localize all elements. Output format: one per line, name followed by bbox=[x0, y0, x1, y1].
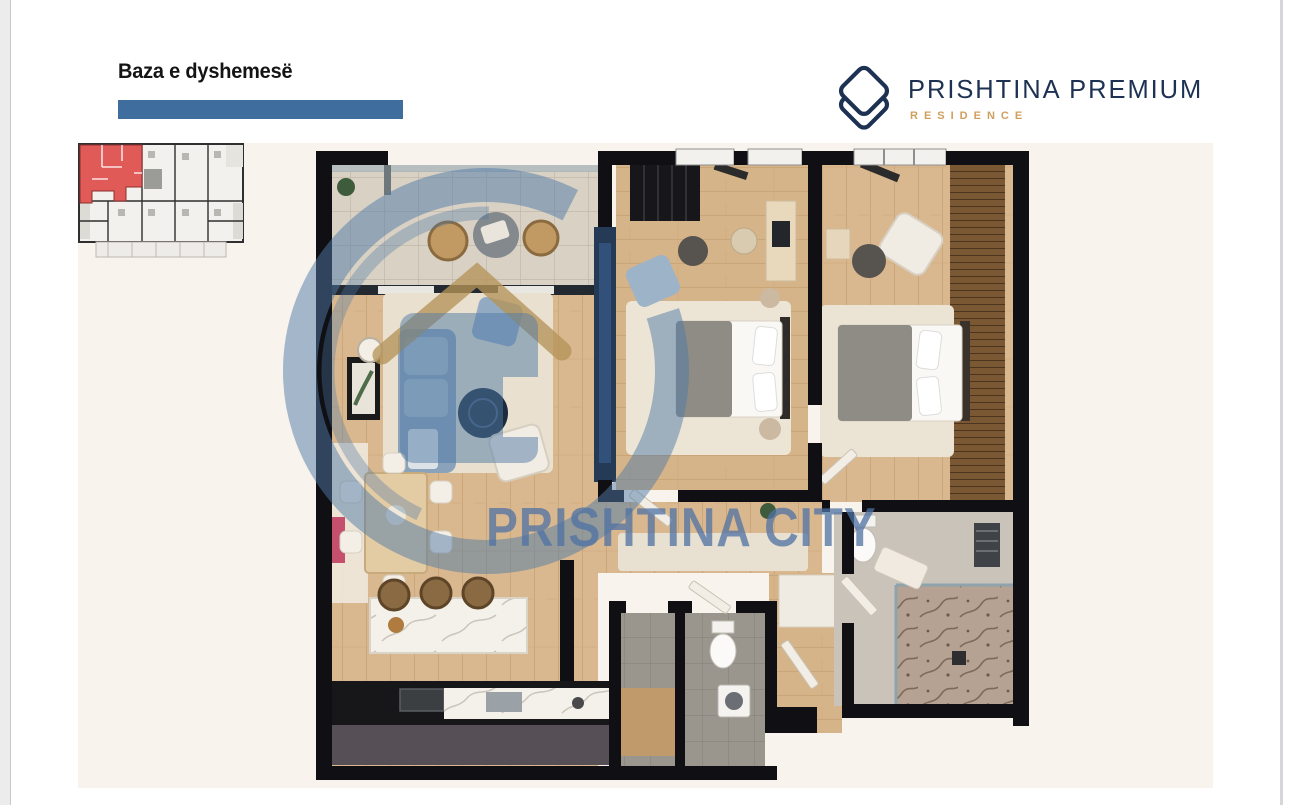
brand-subtitle: RESIDENCE bbox=[910, 110, 1028, 122]
key-plan-inset bbox=[78, 143, 245, 261]
washing-machine bbox=[718, 685, 750, 717]
left-edge-strip bbox=[0, 0, 11, 805]
right-edge-line bbox=[1280, 0, 1283, 805]
elevator-core bbox=[144, 169, 162, 189]
balcony-plant bbox=[337, 178, 355, 196]
shower-floor bbox=[896, 585, 1013, 706]
page-title: Baza e dyshemesë bbox=[118, 60, 292, 84]
wc-door-leaf bbox=[688, 580, 731, 614]
title-underline-bar bbox=[118, 100, 403, 119]
wardrobe bbox=[630, 165, 700, 221]
wc-step bbox=[617, 688, 677, 756]
floor-plan-graphic bbox=[78, 143, 1213, 788]
brochure-page: Baza e dyshemesë PRISHTINA PREMIUM RESID… bbox=[0, 0, 1290, 805]
towel-radiator bbox=[974, 523, 1000, 567]
side-table bbox=[852, 244, 886, 278]
toilet bbox=[710, 621, 736, 668]
watermark-text: PRISHTINA CITY bbox=[486, 495, 877, 559]
brand-lockup: PRISHTINA PREMIUM RESIDENCE bbox=[826, 58, 1186, 138]
hall-cabinet bbox=[779, 575, 839, 627]
pouf bbox=[760, 288, 780, 308]
floor-plan-image: PRISHTINA CITY bbox=[78, 143, 1213, 788]
picture-frame bbox=[347, 357, 380, 420]
side-table bbox=[678, 236, 708, 266]
shower-drain bbox=[952, 651, 966, 665]
stacked-diamonds-building-icon bbox=[826, 58, 902, 136]
console bbox=[826, 229, 850, 259]
bed bbox=[676, 317, 790, 419]
bed bbox=[838, 321, 970, 421]
brand-name: PRISHTINA PREMIUM bbox=[908, 74, 1203, 105]
balcony-chair bbox=[524, 221, 558, 255]
kitchen-counter bbox=[332, 681, 620, 765]
pouf bbox=[759, 418, 781, 440]
